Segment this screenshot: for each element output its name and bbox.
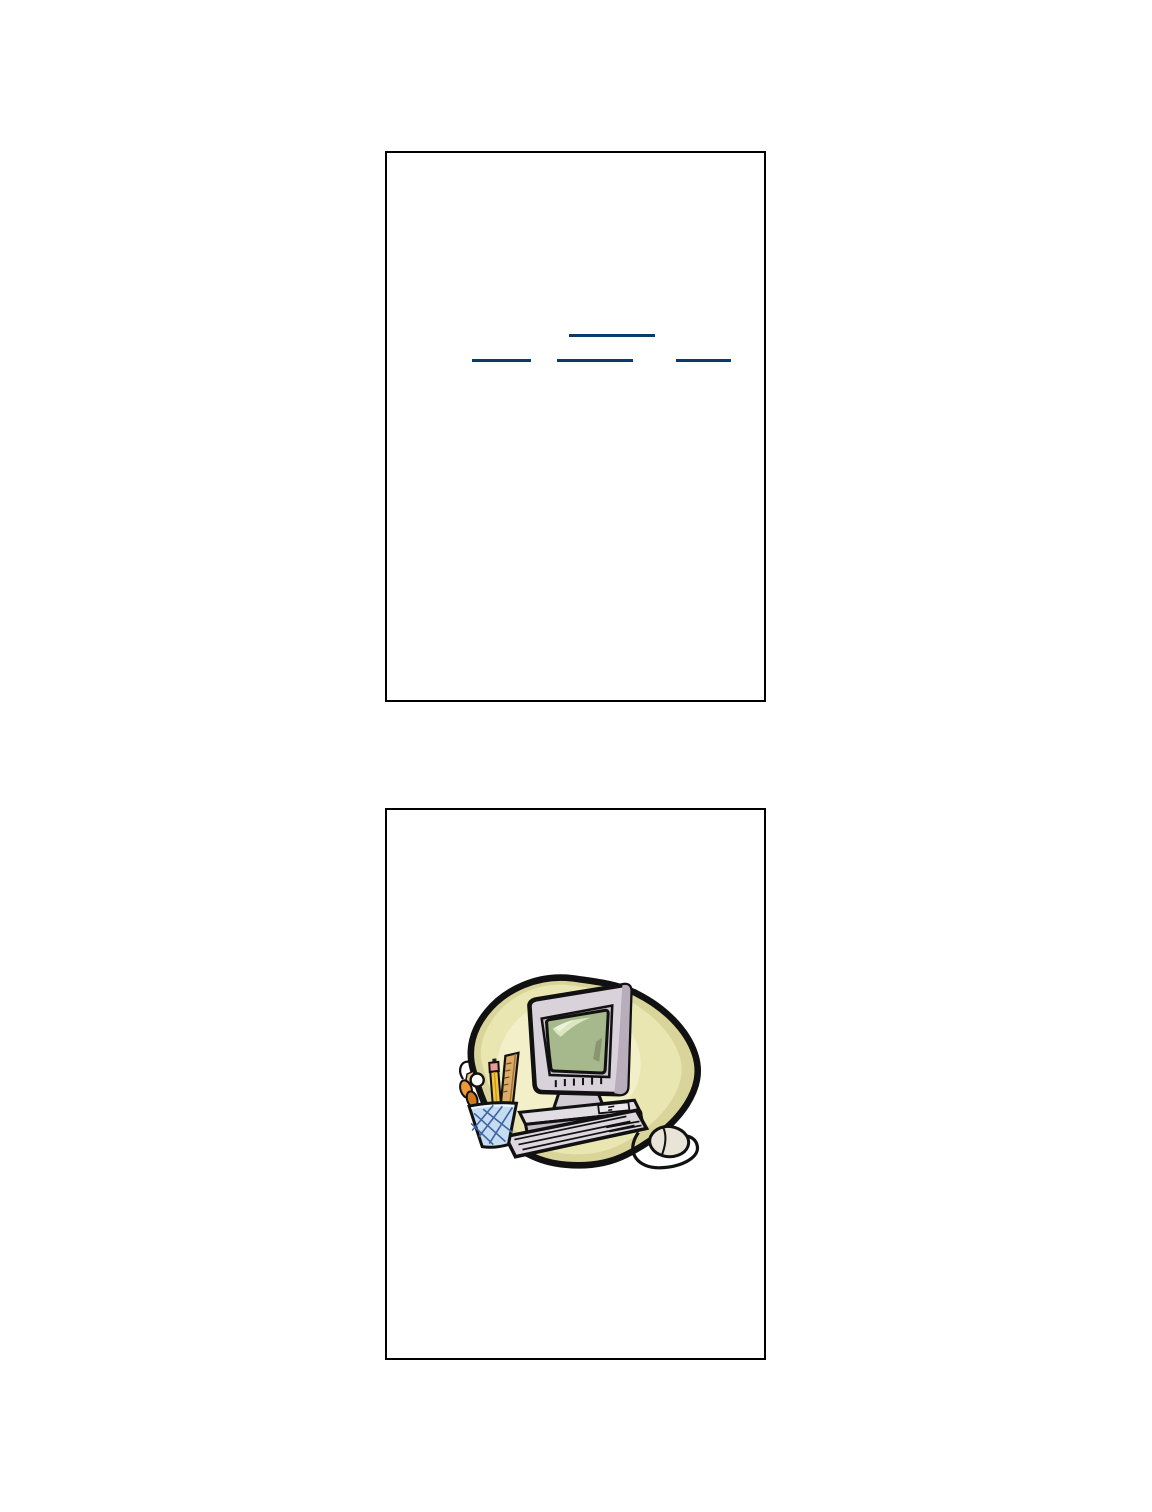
hyperlink-underline-bottom-right[interactable] — [676, 359, 731, 362]
slide-frame-1 — [385, 151, 766, 702]
hyperlink-underline-bottom-center[interactable] — [557, 359, 633, 362]
monitor-icon — [529, 985, 630, 1094]
hyperlink-underline-center-top[interactable] — [569, 334, 655, 337]
document-page — [0, 0, 1152, 1512]
hyperlink-underline-bottom-left[interactable] — [472, 359, 531, 362]
slide-frame-2 — [385, 808, 766, 1360]
computer-clipart-image — [457, 973, 707, 1171]
